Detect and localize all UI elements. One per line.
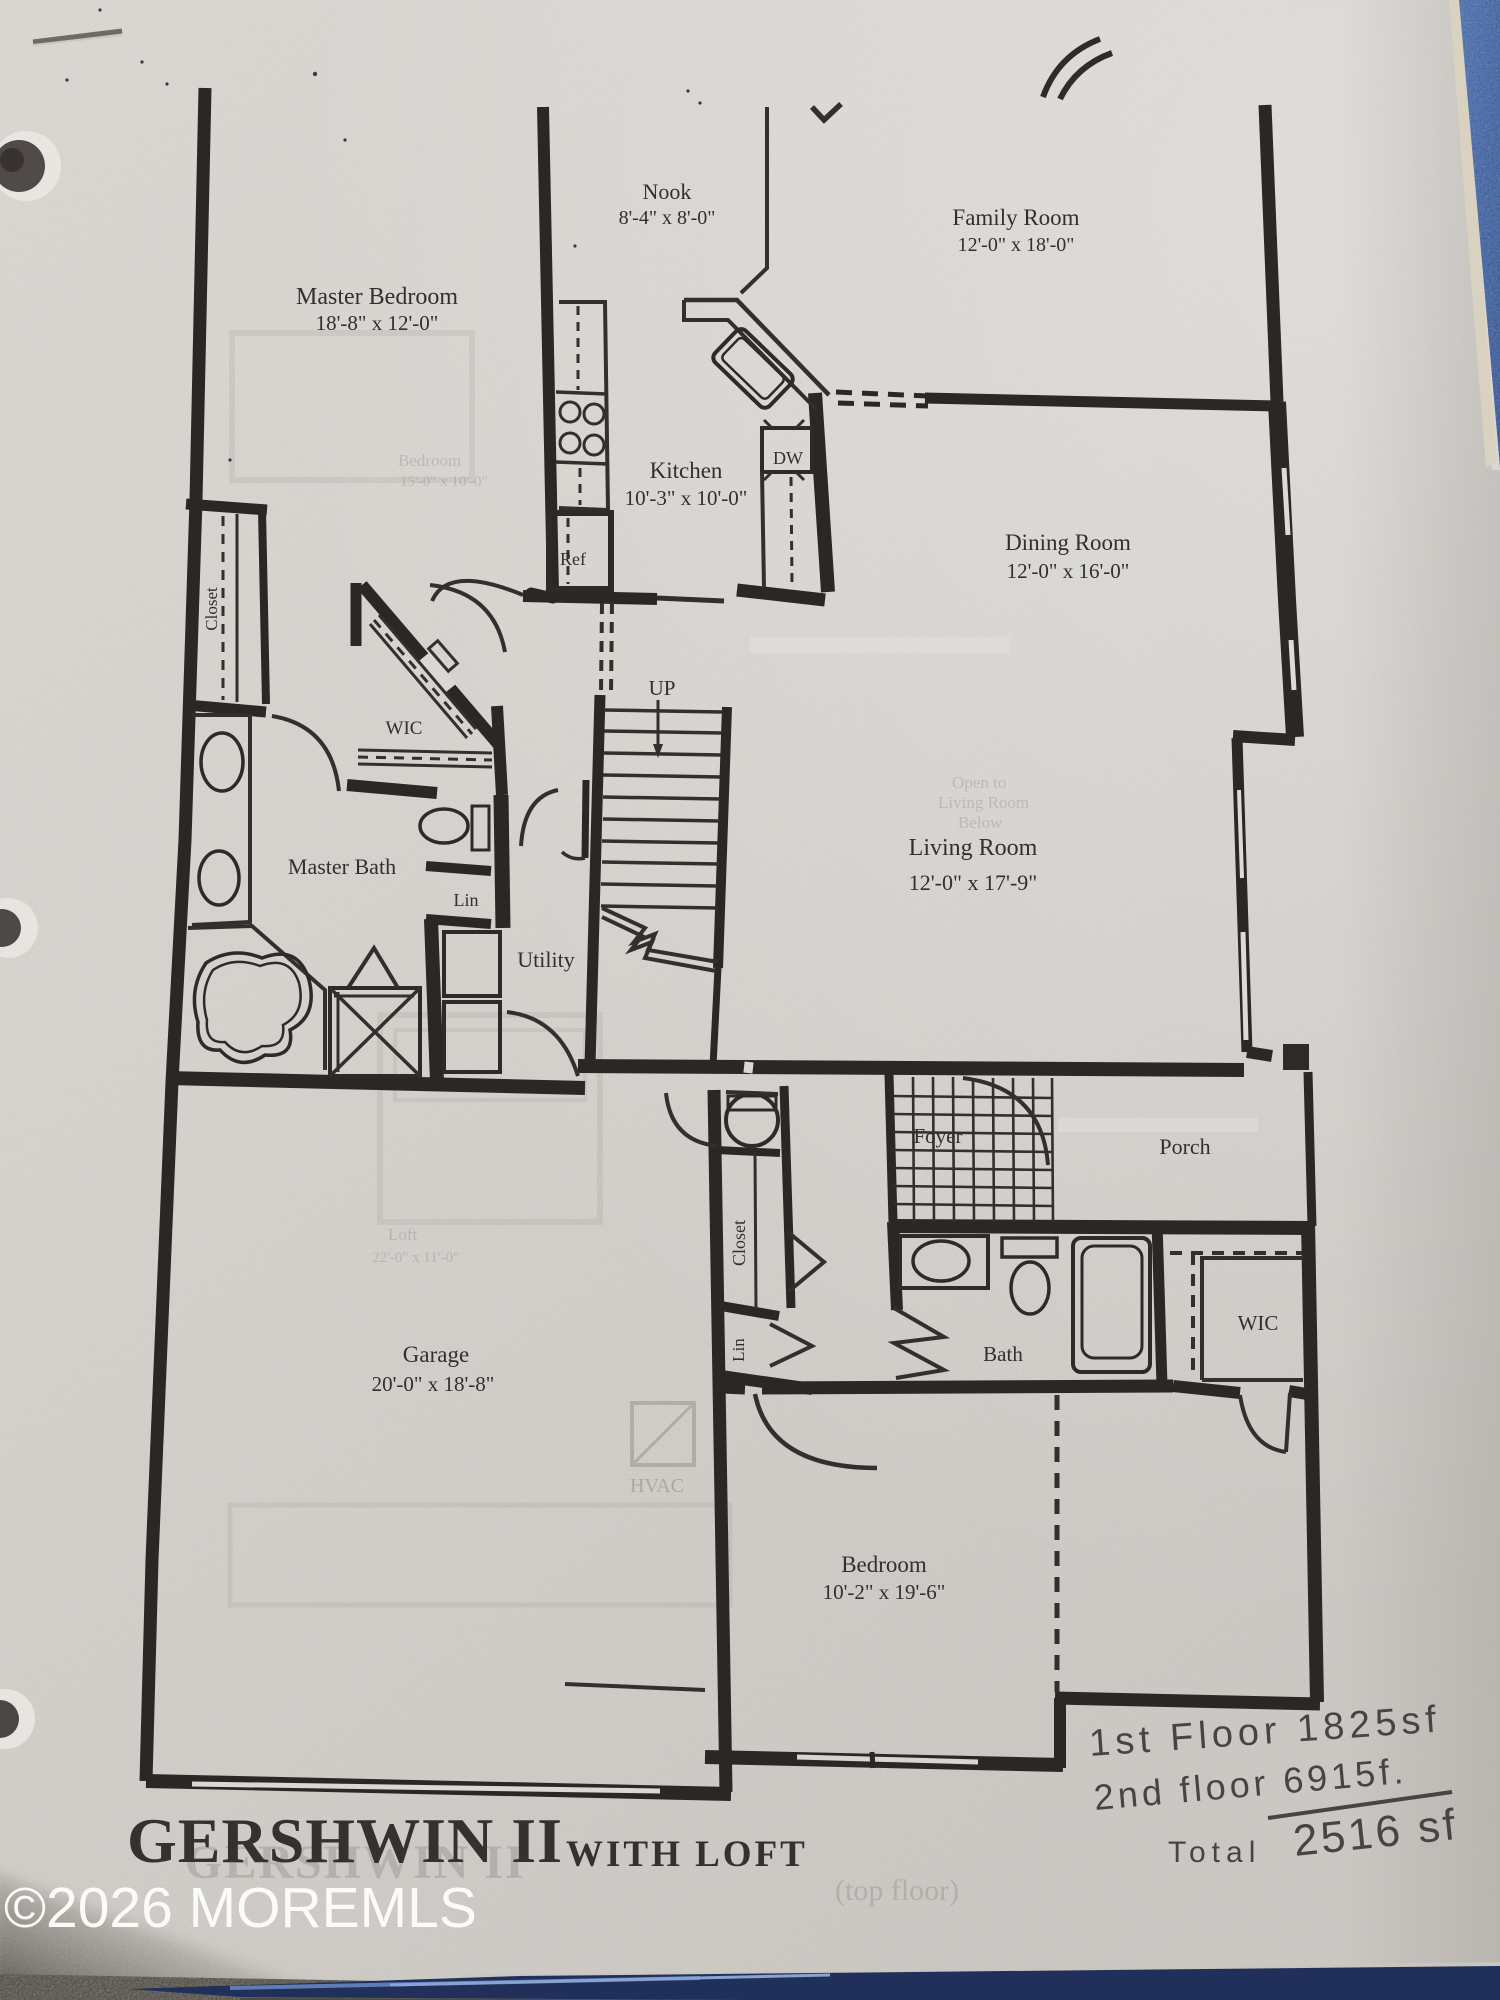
svg-text:GERSHWIN II: GERSHWIN II xyxy=(127,1805,563,1876)
svg-text:WITH LOFT: WITH LOFT xyxy=(566,1834,808,1875)
svg-text:Total: Total xyxy=(1168,1836,1261,1869)
svg-text:©2026 MOREMLS: ©2026 MOREMLS xyxy=(4,1876,477,1940)
